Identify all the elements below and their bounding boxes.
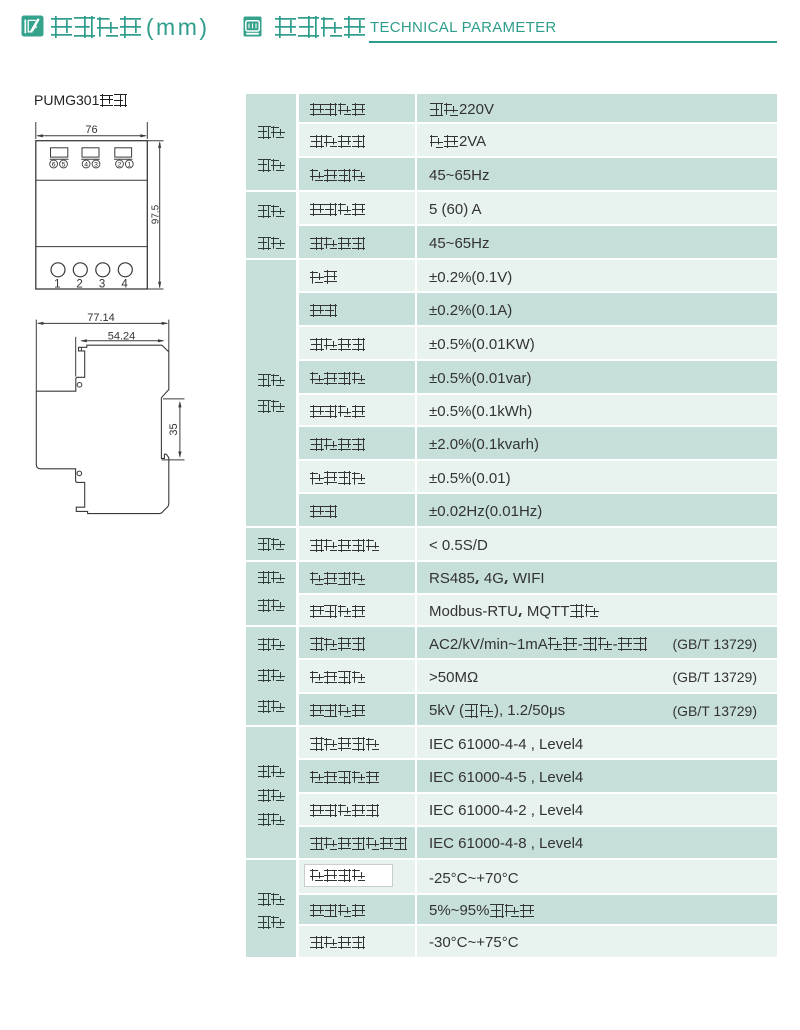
svg-text:3: 3 (99, 279, 105, 291)
svg-text:4: 4 (84, 162, 88, 169)
svg-text:54.24: 54.24 (108, 331, 136, 343)
svg-text:3: 3 (94, 162, 98, 169)
svg-text:35: 35 (168, 423, 180, 435)
svg-text:76: 76 (85, 124, 97, 136)
svg-text:2: 2 (118, 162, 122, 169)
svg-text:77.14: 77.14 (87, 312, 115, 324)
svg-text:1: 1 (127, 162, 131, 169)
svg-text:4: 4 (121, 279, 128, 291)
svg-text:6: 6 (52, 162, 56, 169)
svg-text:2: 2 (76, 279, 82, 291)
svg-text:5: 5 (62, 162, 66, 169)
svg-text:97.5: 97.5 (150, 204, 161, 224)
svg-text:1: 1 (54, 279, 60, 291)
